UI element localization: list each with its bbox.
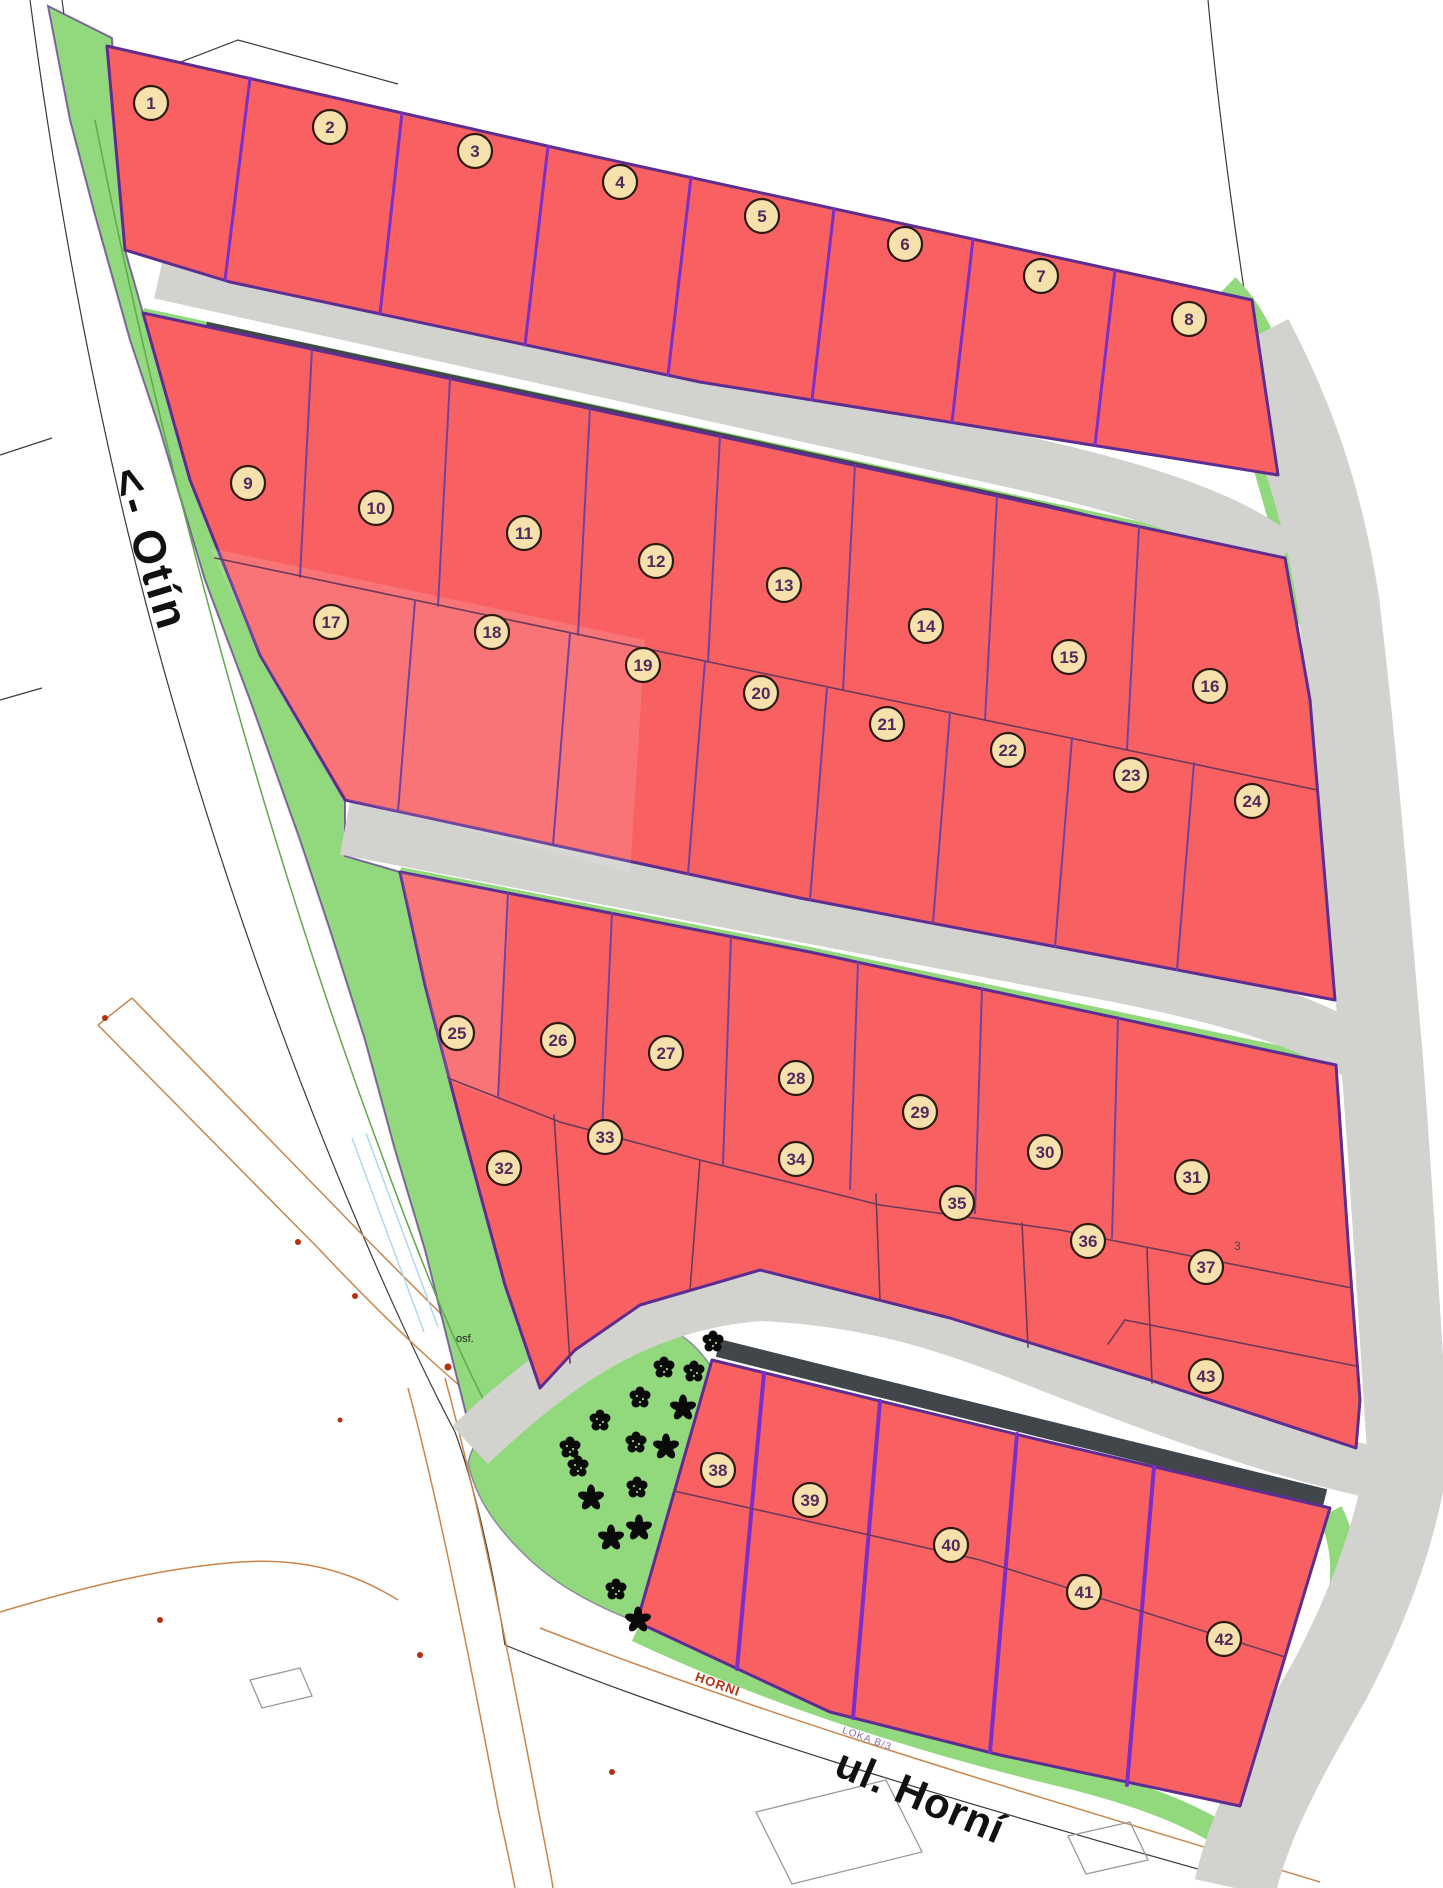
building-outline — [250, 1668, 312, 1708]
plot-badge-15[interactable]: 15 — [1052, 640, 1086, 674]
plot-badge-11[interactable]: 11 — [507, 516, 541, 550]
utility-symbol — [445, 1364, 452, 1371]
plot-number: 19 — [634, 656, 653, 675]
plot-number: 32 — [495, 1159, 514, 1178]
stray-digit-label: 3 — [1234, 1240, 1241, 1252]
plot-badge-7[interactable]: 7 — [1024, 259, 1058, 293]
plot-number: 6 — [900, 235, 909, 254]
plot-number: 13 — [775, 576, 794, 595]
plot-number: 12 — [647, 552, 666, 571]
plot-badge-41[interactable]: 41 — [1067, 1575, 1101, 1609]
plot-number: 5 — [757, 207, 766, 226]
plot-number: 7 — [1036, 267, 1045, 286]
field-line — [0, 438, 52, 455]
plot-number: 28 — [787, 1069, 806, 1088]
plot-badge-19[interactable]: 19 — [626, 648, 660, 682]
plot-badge-2[interactable]: 2 — [313, 110, 347, 144]
plot-number: 10 — [367, 499, 386, 518]
plot-number: 41 — [1075, 1583, 1094, 1602]
plot-number: 20 — [752, 684, 771, 703]
plot-badge-39[interactable]: 39 — [793, 1483, 827, 1517]
plot-badge-43[interactable]: 43 — [1189, 1359, 1223, 1393]
surface-note-label: osf. — [456, 1334, 474, 1345]
plot-number: 2 — [325, 118, 334, 137]
building-outline — [1068, 1822, 1148, 1874]
utility-symbol — [157, 1617, 163, 1623]
plot-badge-3[interactable]: 3 — [458, 134, 492, 168]
plot-number: 35 — [948, 1194, 967, 1213]
plot-number: 33 — [596, 1128, 615, 1147]
plot-number: 43 — [1197, 1367, 1216, 1386]
plot-badge-6[interactable]: 6 — [888, 227, 922, 261]
plot-number: 18 — [483, 623, 502, 642]
plot-number: 14 — [917, 617, 936, 636]
plot-number: 22 — [999, 741, 1018, 760]
plot-badge-36[interactable]: 36 — [1071, 1224, 1105, 1258]
plot-badge-27[interactable]: 27 — [649, 1036, 683, 1070]
plot-number: 3 — [470, 142, 479, 161]
plot-number: 31 — [1183, 1168, 1202, 1187]
plot-number: 8 — [1184, 310, 1193, 329]
plot-number: 25 — [448, 1024, 467, 1043]
plot-badge-25[interactable]: 25 — [440, 1016, 474, 1050]
plot-number: 30 — [1036, 1143, 1055, 1162]
utility-symbol — [102, 1015, 108, 1021]
plot-badge-1[interactable]: 1 — [134, 86, 168, 120]
plot-badge-32[interactable]: 32 — [487, 1151, 521, 1185]
plot-badge-37[interactable]: 37 — [1189, 1250, 1223, 1284]
plot-badge-16[interactable]: 16 — [1193, 669, 1227, 703]
plot-badge-31[interactable]: 31 — [1175, 1160, 1209, 1194]
plot-badge-4[interactable]: 4 — [603, 165, 637, 199]
plot-badge-29[interactable]: 29 — [903, 1095, 937, 1129]
plot-number: 39 — [801, 1491, 820, 1510]
plot-badge-20[interactable]: 20 — [744, 676, 778, 710]
plot-badge-17[interactable]: 17 — [314, 605, 348, 639]
plot-badge-5[interactable]: 5 — [745, 199, 779, 233]
plot-number: 9 — [243, 474, 252, 493]
plot-badge-28[interactable]: 28 — [779, 1061, 813, 1095]
plot-badge-42[interactable]: 42 — [1207, 1622, 1241, 1656]
plot-number: 27 — [657, 1044, 676, 1063]
plot-number: 16 — [1201, 677, 1220, 696]
plot-number: 11 — [515, 524, 533, 543]
plot-number: 26 — [549, 1031, 568, 1050]
utility-symbol — [338, 1418, 343, 1423]
plot-number: 17 — [322, 613, 341, 632]
plot-number: 15 — [1060, 648, 1079, 667]
road-branch-east — [1398, 1468, 1443, 1475]
utility-symbol — [417, 1652, 423, 1658]
utility-symbol — [295, 1239, 301, 1245]
plot-badge-9[interactable]: 9 — [231, 466, 265, 500]
plot-number: 40 — [942, 1536, 961, 1555]
plot-number: 29 — [911, 1103, 930, 1122]
utility-symbol — [352, 1293, 358, 1299]
field-line — [0, 688, 42, 700]
plot-badge-26[interactable]: 26 — [541, 1023, 575, 1057]
plot-badge-40[interactable]: 40 — [934, 1528, 968, 1562]
plot-badge-12[interactable]: 12 — [639, 544, 673, 578]
plot-badge-30[interactable]: 30 — [1028, 1135, 1062, 1169]
plot-badge-10[interactable]: 10 — [359, 491, 393, 525]
plot-badge-33[interactable]: 33 — [588, 1120, 622, 1154]
zoning-map-canvas: 1234567891011121314151617181920212223242… — [0, 0, 1443, 1888]
plot-number: 4 — [615, 173, 625, 192]
utility-symbol — [609, 1769, 615, 1775]
plot-number: 23 — [1122, 766, 1141, 785]
orange-road — [98, 998, 350, 1248]
plot-number: 34 — [787, 1150, 806, 1169]
plot-number: 1 — [146, 94, 155, 113]
plot-badge-23[interactable]: 23 — [1114, 758, 1148, 792]
orange-road — [0, 1561, 398, 1612]
plot-badge-34[interactable]: 34 — [779, 1142, 813, 1176]
plot-badge-8[interactable]: 8 — [1172, 302, 1206, 336]
plot-number: 38 — [709, 1461, 728, 1480]
plot-number: 21 — [878, 715, 897, 734]
plot-badge-14[interactable]: 14 — [909, 609, 943, 643]
deciduous-tree-icon — [703, 1331, 724, 1352]
plot-badge-18[interactable]: 18 — [475, 615, 509, 649]
plot-badge-35[interactable]: 35 — [940, 1186, 974, 1220]
site-map-svg: 1234567891011121314151617181920212223242… — [0, 0, 1443, 1888]
plot-badge-24[interactable]: 24 — [1235, 784, 1269, 818]
plot-badge-21[interactable]: 21 — [870, 707, 904, 741]
plot-number: 24 — [1243, 792, 1262, 811]
plot-number: 42 — [1215, 1630, 1234, 1649]
plot-badge-38[interactable]: 38 — [701, 1453, 735, 1487]
plot-badge-22[interactable]: 22 — [991, 733, 1025, 767]
plot-number: 36 — [1079, 1232, 1098, 1251]
plot-number: 37 — [1197, 1258, 1216, 1277]
plot-badge-13[interactable]: 13 — [767, 568, 801, 602]
